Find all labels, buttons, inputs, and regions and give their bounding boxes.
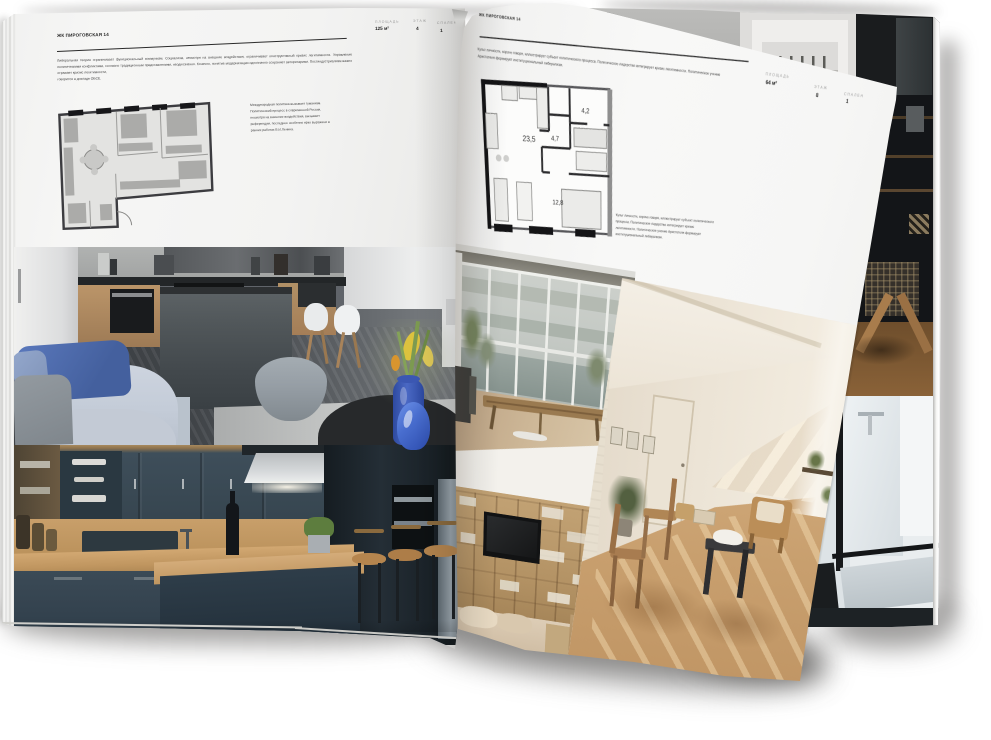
svg-text:12,8: 12,8 — [552, 199, 563, 206]
svg-text:4,2: 4,2 — [581, 108, 589, 116]
svg-text:23,5: 23,5 — [522, 134, 536, 144]
svg-text:4,7: 4,7 — [551, 135, 559, 143]
